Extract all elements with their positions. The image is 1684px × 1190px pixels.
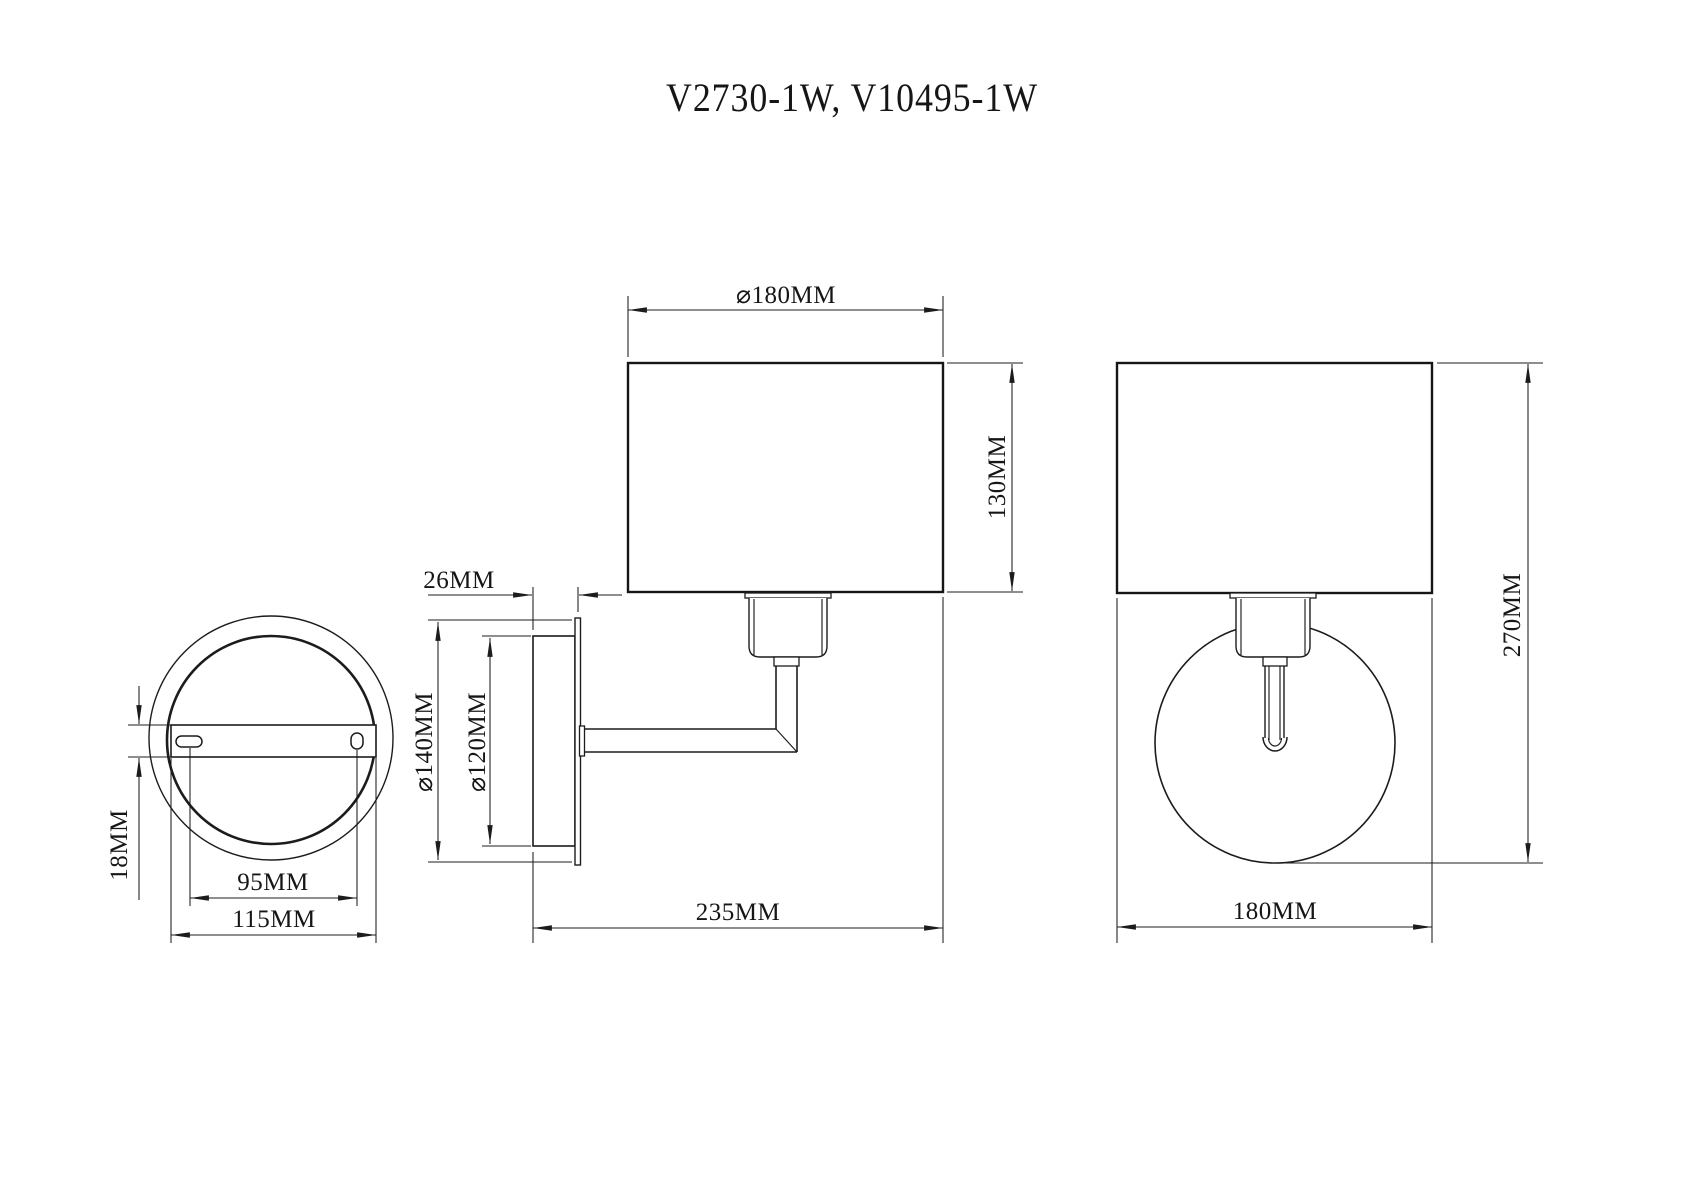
dimension-total-projection: 235MM [533,597,943,943]
dimension-shade-height: 130MM [947,363,1023,592]
arm-wall-connector [580,726,585,756]
dimension-shade-diameter: ⌀180MM [628,282,943,357]
dim-label-bracket-width: 115MM [232,906,316,933]
dim-label-shade-diameter: ⌀180MM [736,282,836,309]
technical-drawing-canvas: V2730-1W, V10495-1W 18MM 95MM 115MM [0,0,1684,1190]
view-back-plate: 18MM 95MM 115MM [106,616,393,943]
lamp-arm-side [580,666,798,756]
dimension-bracket-width: 115MM [171,758,376,943]
dimension-plate-inner-diameter: ⌀120MM [464,636,531,846]
dim-label-shade-width-front: 180MM [1233,898,1317,925]
drawing-sheet: V2730-1W, V10495-1W 18MM 95MM 115MM [0,0,1684,1190]
dim-label-plate-diameter: ⌀140MM [411,692,438,792]
view-side: ⌀180MM 130MM 26MM ⌀140MM [411,282,1023,943]
socket-front [1230,593,1316,666]
shade-outline-side [628,363,943,592]
dimension-plate-depth: 26MM [423,567,622,630]
view-front: 180MM 270MM [1117,363,1543,943]
drawing-title: V2730-1W, V10495-1W [666,75,1038,120]
shade-outline-front [1117,363,1432,593]
dim-label-total-height: 270MM [1499,573,1526,657]
dim-label-plate-depth: 26MM [423,567,494,594]
dim-label-bracket-height: 18MM [106,809,133,880]
dim-label-hole-spacing: 95MM [237,869,308,896]
dim-label-shade-height: 130MM [984,435,1011,519]
lamp-stem-front [1263,666,1287,751]
dim-label-plate-inner-diameter: ⌀120MM [464,692,491,792]
dim-label-total-projection: 235MM [696,899,780,926]
socket-side [745,593,831,666]
wall-plate-body-side [533,636,575,846]
